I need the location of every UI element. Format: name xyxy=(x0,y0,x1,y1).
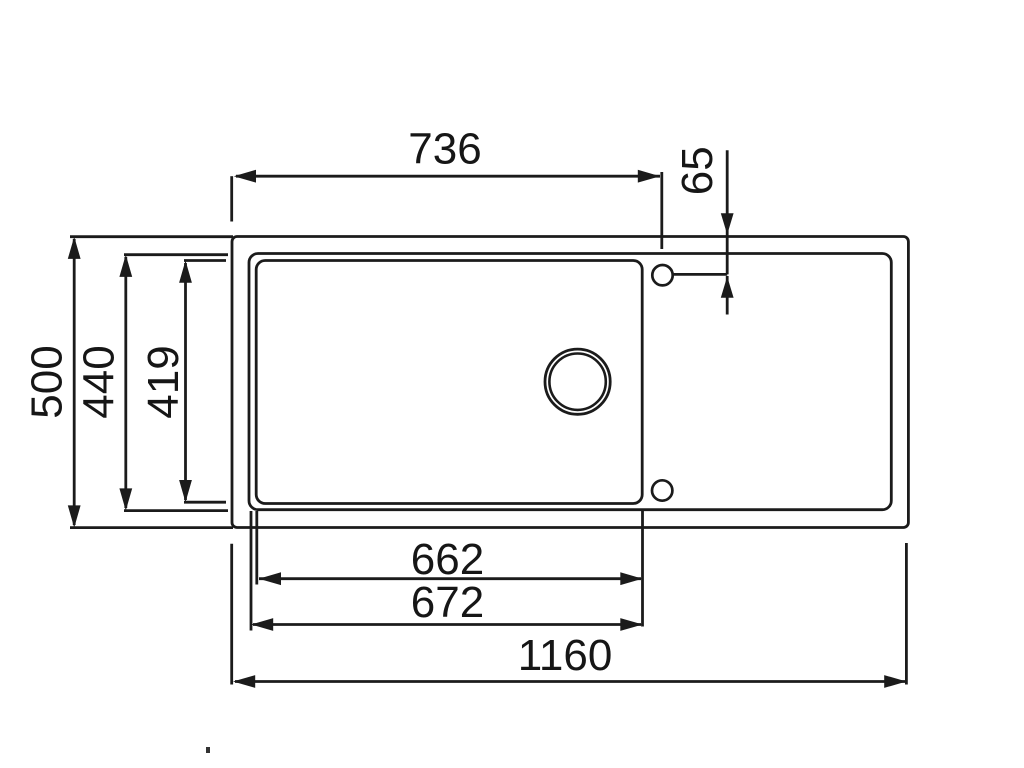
svg-text:419: 419 xyxy=(139,345,188,418)
svg-text:500: 500 xyxy=(23,345,72,418)
svg-text:65: 65 xyxy=(673,146,722,195)
svg-text:662: 662 xyxy=(411,535,484,584)
svg-text:736: 736 xyxy=(408,125,481,174)
svg-text:1160: 1160 xyxy=(518,631,613,680)
svg-text:672: 672 xyxy=(411,578,484,627)
svg-text:440: 440 xyxy=(75,345,124,418)
